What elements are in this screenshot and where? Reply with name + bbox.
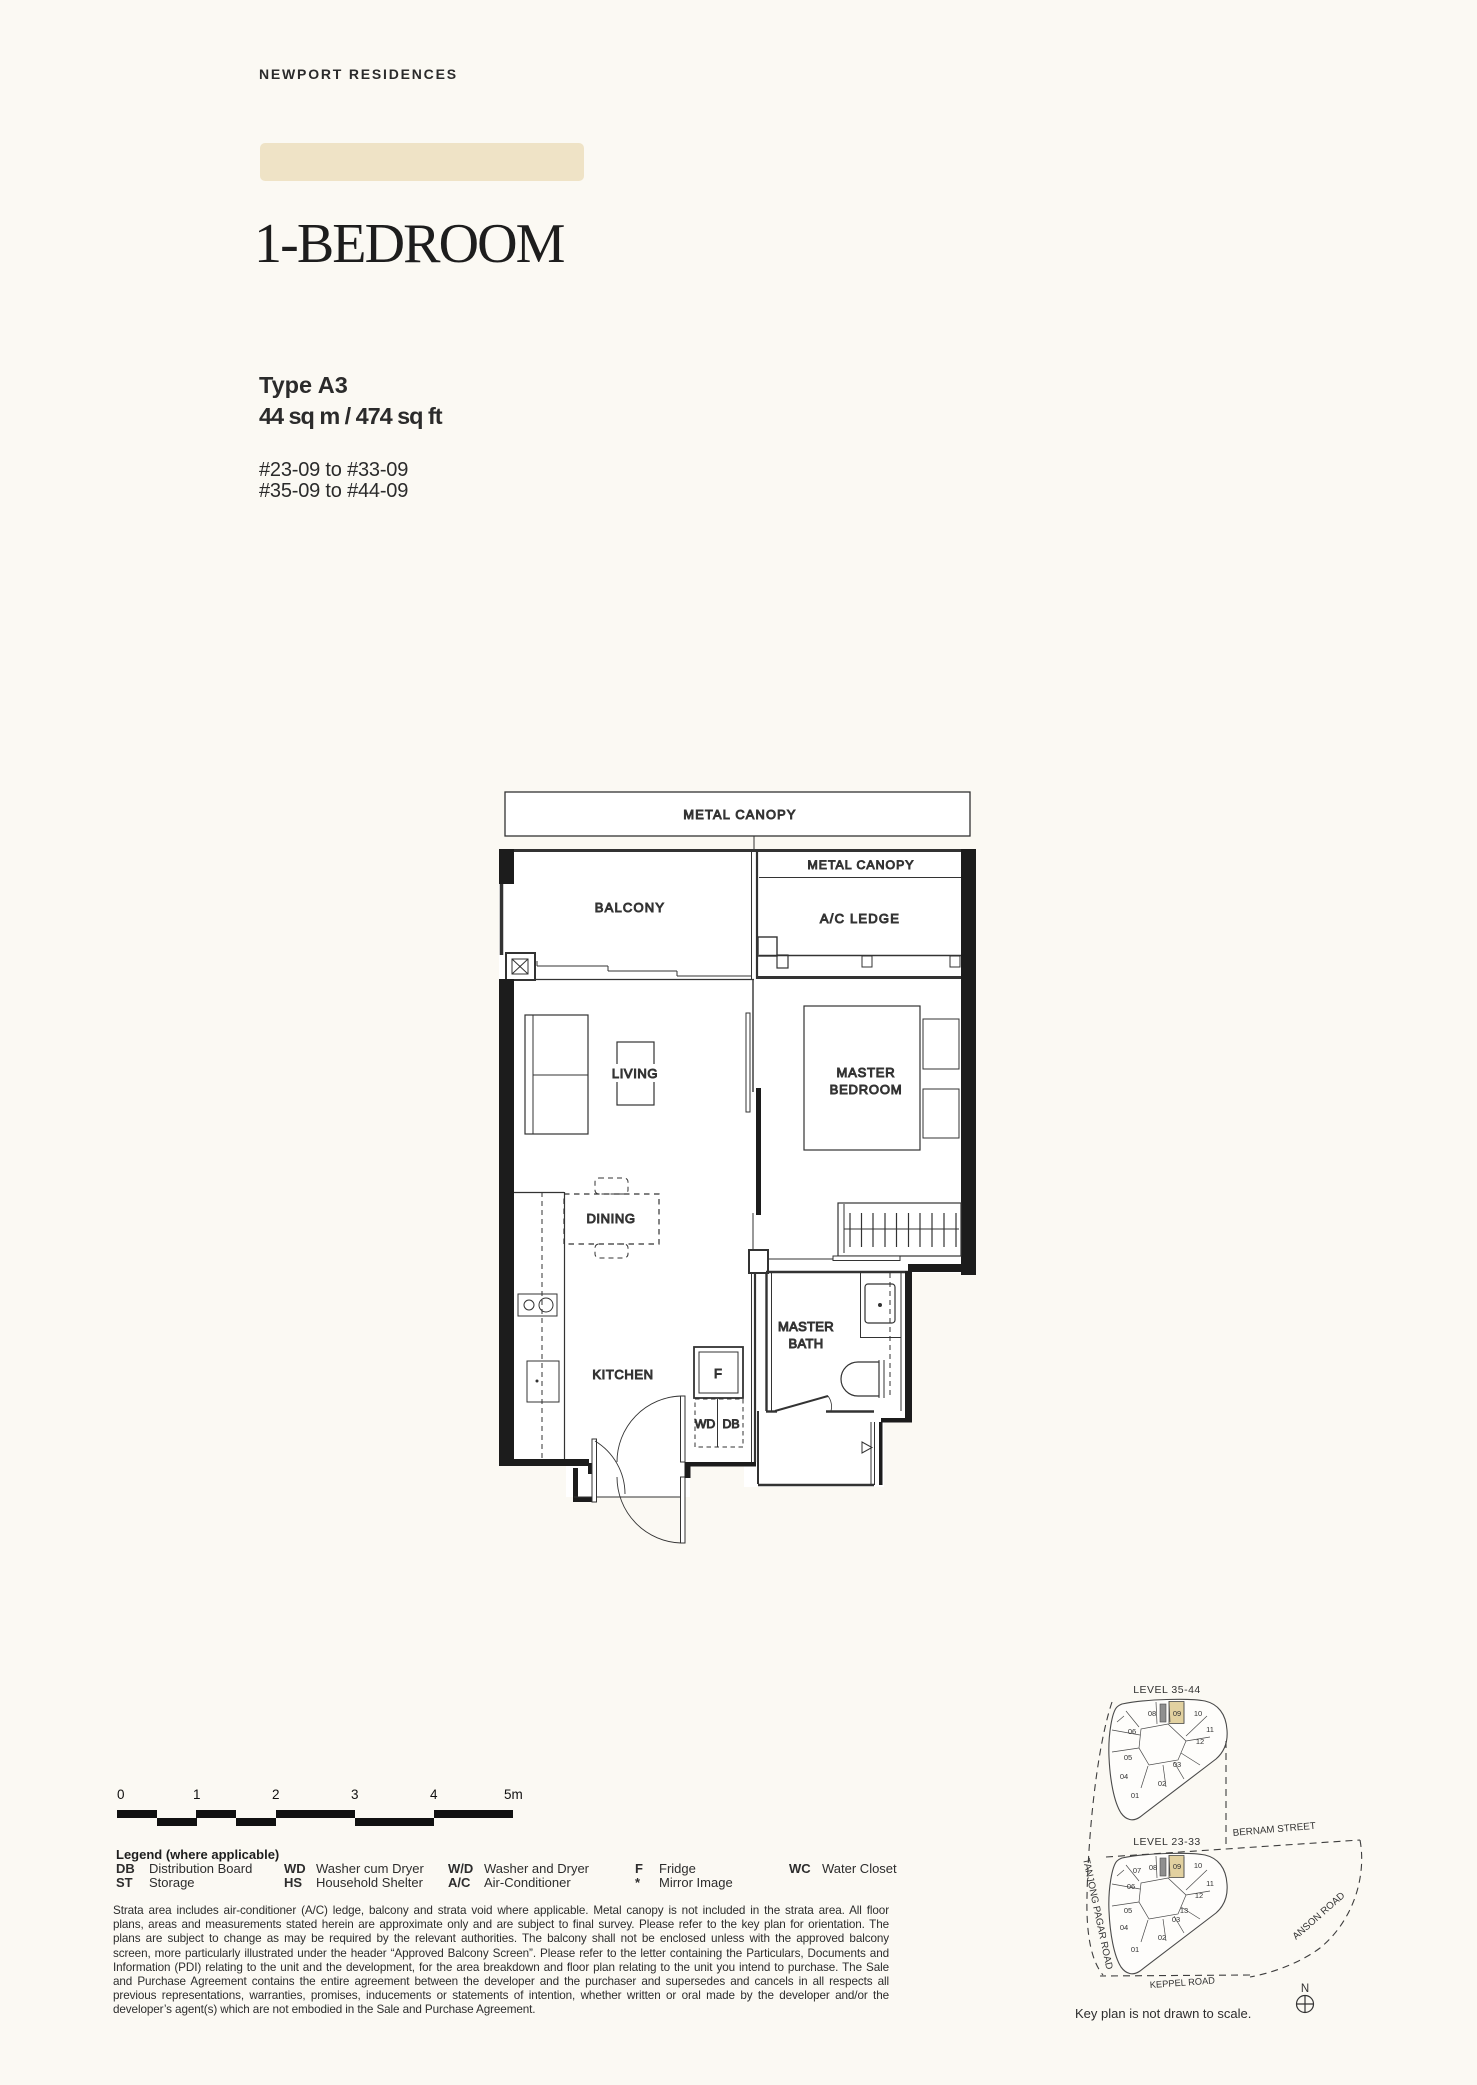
- svg-text:08: 08: [1148, 1709, 1156, 1718]
- svg-text:08: 08: [1149, 1863, 1157, 1872]
- svg-text:BALCONY: BALCONY: [595, 900, 666, 915]
- svg-text:05: 05: [1124, 1906, 1132, 1915]
- svg-text:MASTER: MASTER: [778, 1319, 834, 1334]
- svg-text:09: 09: [1173, 1709, 1181, 1718]
- svg-text:KITCHEN: KITCHEN: [592, 1367, 653, 1382]
- svg-text:04: 04: [1120, 1772, 1128, 1781]
- svg-text:06: 06: [1127, 1882, 1135, 1891]
- svg-text:5m: 5m: [504, 1787, 523, 1802]
- svg-text:11: 11: [1206, 1725, 1214, 1734]
- svg-text:ANSON ROAD: ANSON ROAD: [1291, 1890, 1348, 1942]
- svg-text:LEVEL 23-33: LEVEL 23-33: [1133, 1836, 1201, 1848]
- svg-text:METAL CANOPY: METAL CANOPY: [683, 807, 796, 822]
- svg-text:05: 05: [1124, 1753, 1132, 1762]
- svg-text:10: 10: [1194, 1709, 1202, 1718]
- svg-text:0: 0: [117, 1787, 125, 1802]
- svg-text:F: F: [714, 1366, 722, 1381]
- svg-text:02: 02: [1158, 1933, 1166, 1942]
- svg-text:12: 12: [1195, 1891, 1203, 1900]
- svg-text:02: 02: [1158, 1779, 1166, 1788]
- svg-text:10: 10: [1194, 1861, 1202, 1870]
- svg-text:MASTER: MASTER: [837, 1065, 896, 1080]
- svg-text:DB: DB: [722, 1417, 739, 1431]
- svg-text:3: 3: [351, 1787, 359, 1802]
- svg-text:LIVING: LIVING: [612, 1066, 658, 1081]
- svg-text:06: 06: [1128, 1727, 1136, 1736]
- svg-text:2: 2: [272, 1787, 280, 1802]
- svg-text:04: 04: [1120, 1923, 1128, 1932]
- svg-text:A/C LEDGE: A/C LEDGE: [820, 911, 900, 926]
- svg-text:LEVEL 35-44: LEVEL 35-44: [1133, 1684, 1201, 1696]
- svg-text:01: 01: [1131, 1791, 1139, 1800]
- svg-text:1: 1: [193, 1787, 201, 1802]
- svg-text:4: 4: [430, 1787, 438, 1802]
- svg-text:13: 13: [1180, 1906, 1188, 1915]
- svg-text:METAL CANOPY: METAL CANOPY: [808, 858, 915, 872]
- svg-text:KEPPEL ROAD: KEPPEL ROAD: [1149, 1975, 1215, 1990]
- svg-text:09: 09: [1173, 1862, 1181, 1871]
- svg-text:11: 11: [1206, 1879, 1214, 1888]
- svg-text:03: 03: [1172, 1915, 1180, 1924]
- svg-text:N: N: [1301, 1983, 1309, 1995]
- svg-text:BEDROOM: BEDROOM: [830, 1082, 903, 1097]
- svg-text:01: 01: [1131, 1945, 1139, 1954]
- svg-text:BATH: BATH: [789, 1336, 824, 1351]
- svg-text:03: 03: [1173, 1760, 1181, 1769]
- svg-text:BERNAM STREET: BERNAM STREET: [1232, 1821, 1316, 1839]
- svg-text:07: 07: [1133, 1866, 1141, 1875]
- svg-text:WD: WD: [695, 1417, 716, 1431]
- svg-text:DINING: DINING: [586, 1211, 635, 1226]
- svg-text:12: 12: [1196, 1737, 1204, 1746]
